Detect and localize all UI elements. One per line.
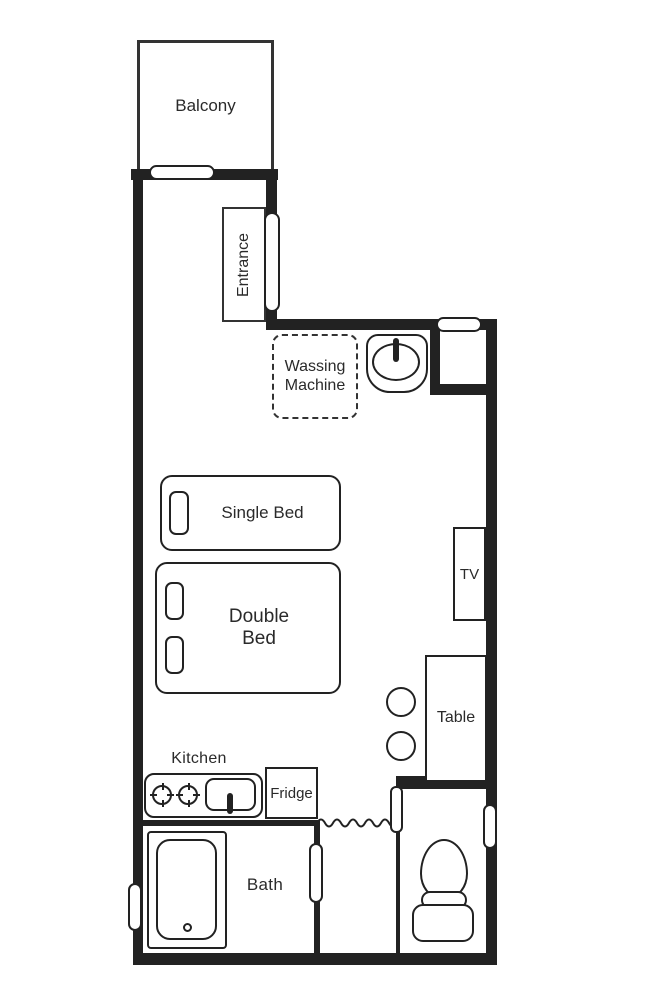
- balcony-label: Balcony: [175, 96, 235, 116]
- fridge: Fridge: [265, 767, 318, 819]
- wall-niche-bottom: [430, 384, 497, 395]
- balcony-door: [149, 165, 215, 180]
- bathtub-drain-icon: [183, 923, 192, 932]
- toilet-tank: [412, 904, 474, 942]
- toilet-window: [483, 804, 497, 849]
- kitchen-counter: [144, 773, 263, 818]
- toilet-bowl: [420, 839, 468, 899]
- tv-label: TV: [460, 566, 479, 583]
- wash-basin: [366, 334, 428, 393]
- fridge-label: Fridge: [270, 785, 313, 802]
- double-bed: Double Bed: [155, 562, 341, 694]
- single-bed-pillow: [169, 491, 189, 535]
- double-bed-pillow-2: [165, 636, 184, 674]
- table-label: Table: [437, 657, 475, 727]
- washing-machine: Wassing Machine: [272, 334, 358, 419]
- kitchen-tap-icon: [227, 793, 233, 814]
- entrance-door: [264, 212, 280, 312]
- wall-left-outer: [133, 169, 143, 965]
- kitchen-label: Kitchen: [144, 749, 254, 769]
- single-bed-label: Single Bed: [197, 503, 303, 523]
- single-bed: Single Bed: [160, 475, 341, 551]
- basin-tap-icon: [393, 338, 399, 362]
- chair-2: [386, 731, 416, 761]
- stove-burner-2-icon: [178, 785, 198, 805]
- washing-machine-label-line2: Machine: [285, 377, 346, 395]
- wall-right-outer: [486, 319, 497, 965]
- double-bed-label-line2: Bed: [229, 628, 289, 650]
- tv: TV: [453, 527, 486, 621]
- wall-bottom-outer: [133, 953, 497, 965]
- shower-curtain-icon: [317, 815, 397, 831]
- washing-machine-label-line1: Wassing: [285, 358, 346, 376]
- entrance-label: Entrance: [235, 232, 253, 296]
- entrance-room: Entrance: [222, 207, 266, 322]
- bath-label: Bath: [230, 875, 300, 895]
- double-bed-label-line1: Double: [229, 606, 289, 628]
- table: Table: [425, 655, 487, 782]
- double-bed-pillow-1: [165, 582, 184, 620]
- bath-door: [309, 843, 323, 903]
- bath-window: [128, 883, 142, 931]
- niche-window: [436, 317, 482, 332]
- bathtub: [147, 831, 227, 949]
- stove-burner-1-icon: [152, 785, 172, 805]
- chair-1: [386, 687, 416, 717]
- kitchen-sink-icon: [205, 778, 256, 811]
- toilet-icon: [410, 838, 476, 944]
- toilet-door: [390, 786, 403, 833]
- floor-plan: Balcony Entrance Wassing Machine Single …: [0, 0, 661, 1000]
- wall-bath-top: [143, 820, 319, 826]
- balcony-room: Balcony: [137, 40, 274, 172]
